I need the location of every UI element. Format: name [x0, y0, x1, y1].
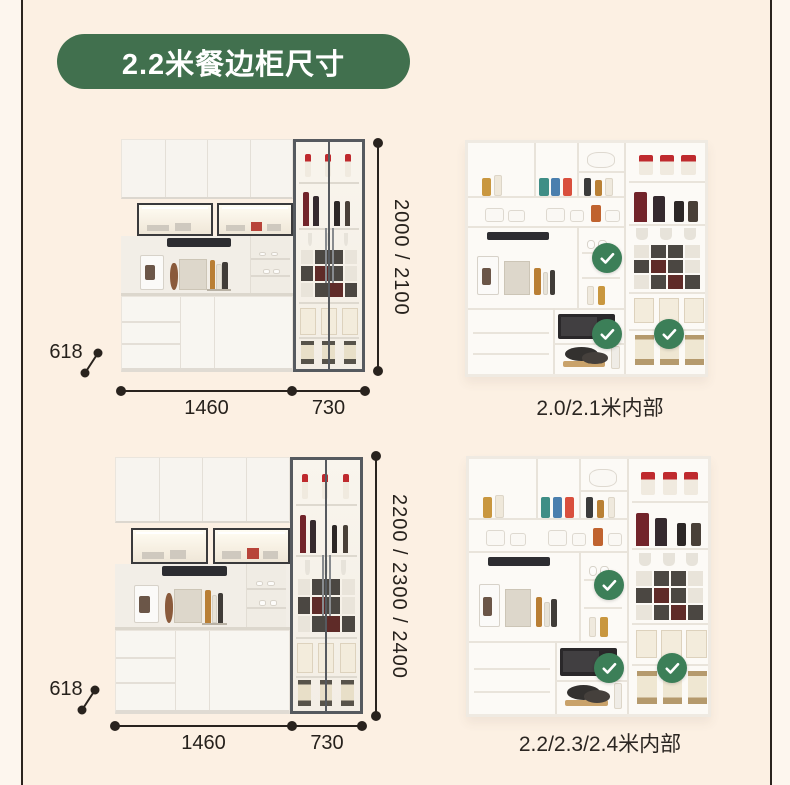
stemware: [344, 233, 349, 247]
liquor-bottle: [345, 154, 351, 177]
cabinet-diagram-2.2m: [115, 457, 363, 714]
bottle: [222, 262, 227, 290]
stemware: [639, 553, 651, 566]
bottle: [586, 497, 593, 517]
dishes: [608, 533, 622, 546]
glass-display-row: [131, 528, 290, 564]
liquor-bottle: [305, 154, 311, 177]
dishes: [548, 530, 567, 545]
bottle: [205, 590, 211, 623]
bottle: [611, 346, 619, 369]
box: [593, 528, 603, 546]
bottle: [210, 260, 216, 290]
wine-bottle: [345, 201, 350, 226]
bottle: [534, 268, 540, 296]
interior-caption: 2.2/2.3/2.4米内部: [455, 728, 745, 758]
wine-rack-grid: [636, 571, 703, 619]
wine-bottle: [634, 192, 647, 222]
wine-bottle: [688, 201, 697, 222]
tea-caddy: [298, 680, 311, 706]
base-cabinets: [121, 296, 293, 372]
cabinet-interior-illustration: [466, 456, 711, 717]
checkmark-icon: [654, 319, 684, 349]
wine-bottle: [655, 518, 667, 546]
pot: [587, 152, 615, 168]
wine-bottle: [674, 201, 683, 222]
dishes: [486, 530, 505, 545]
wine-bottle: [334, 201, 339, 226]
stemware: [663, 553, 675, 566]
wine-cabinet-section: [293, 139, 365, 372]
dishes: [510, 533, 527, 546]
dishes: [572, 533, 586, 546]
liquor-bottle: [639, 155, 653, 176]
pot: [589, 469, 618, 487]
counter-area: [121, 236, 293, 294]
checkmark-icon: [657, 653, 687, 683]
can: [539, 178, 548, 196]
checkmark-icon: [592, 243, 622, 273]
tea-caddy: [341, 680, 354, 706]
glass-display-row: [137, 203, 293, 236]
bottle: [605, 178, 612, 196]
stemware: [308, 233, 313, 247]
box: [591, 205, 600, 221]
light-strip: [488, 557, 550, 566]
gift-box: [297, 643, 313, 673]
bottle: [218, 593, 223, 623]
base-cabinets: [115, 630, 290, 714]
cup: [589, 566, 597, 576]
bottle: [536, 597, 542, 628]
gift-box: [300, 308, 316, 335]
gift-box: [636, 630, 656, 658]
paper-bag: [504, 261, 530, 296]
coffee-machine: [140, 255, 164, 290]
coffee-machine: [134, 585, 158, 623]
tea-caddy: [301, 341, 314, 365]
open-shelf-niche: [246, 564, 286, 627]
width-main-dimension-label: 1460: [115, 732, 292, 755]
liquor-bottle: [343, 474, 349, 499]
light-strip: [162, 566, 227, 576]
wine-bottle: [300, 515, 307, 553]
liquor-bottle: [681, 155, 695, 176]
jar: [589, 617, 596, 637]
page-margin-right: [772, 0, 790, 785]
coffee-machine: [477, 256, 498, 295]
interior-caption: 2.0/2.1米内部: [455, 392, 745, 422]
tea-caddy: [344, 341, 357, 365]
open-shelf-niche: [250, 236, 290, 294]
gift-box: [686, 630, 706, 658]
tray: [202, 623, 226, 625]
gourd-ornament: [165, 593, 173, 623]
gift-box: [342, 308, 358, 335]
stemware: [686, 553, 698, 566]
tea-caddy: [688, 671, 707, 704]
pan: [584, 690, 610, 703]
liquor-bottle: [641, 472, 655, 495]
upper-doors: [115, 457, 290, 523]
product-dimension-page: { "badge": { "label": "2.2米餐边柜尺寸" }, "co…: [0, 0, 790, 785]
liquor-bottle: [660, 155, 674, 176]
bottle: [543, 272, 549, 295]
wine-bottle: [303, 192, 310, 226]
width-side-dimension-label: 730: [292, 732, 362, 755]
bottle: [550, 270, 556, 295]
height-dimension-label: 2000 / 2100: [386, 143, 412, 371]
jar: [495, 495, 503, 518]
depth-dimension-label: 618: [46, 678, 86, 701]
light-strip: [487, 232, 549, 240]
tea-caddy: [685, 335, 704, 365]
gift-box: [634, 298, 654, 323]
gourd-ornament: [170, 263, 178, 290]
width-side-dimension-label: 730: [292, 397, 365, 420]
width-main-dimension-label: 1460: [121, 397, 292, 420]
can: [541, 497, 551, 517]
dishes: [508, 210, 525, 222]
jar: [600, 617, 607, 637]
wine-bottle: [653, 196, 665, 221]
sideboard-illustration: [121, 139, 365, 372]
paper-bag: [174, 589, 202, 623]
jar: [483, 497, 491, 517]
wine-bottle: [677, 523, 687, 546]
bottle: [608, 497, 615, 517]
stemware: [684, 228, 696, 240]
can: [563, 178, 572, 196]
gift-box: [684, 298, 704, 323]
counter-area: [115, 564, 290, 627]
coffee-machine: [479, 584, 501, 627]
stemware: [636, 228, 648, 240]
bottle: [584, 178, 591, 196]
can: [553, 497, 563, 517]
stemware: [341, 560, 346, 575]
jar: [587, 286, 594, 304]
can: [551, 178, 560, 196]
stemware: [660, 228, 672, 240]
wine-rack-grid: [634, 245, 700, 289]
wine-cabinet-section: [290, 457, 363, 714]
wine-bottle: [332, 525, 337, 553]
section-title-badge: 2.2米餐边柜尺寸: [57, 34, 410, 89]
upper-doors: [121, 139, 293, 199]
cabinet-interior-illustration: [465, 140, 708, 377]
gift-box: [340, 643, 356, 673]
height-dimension-label: 2200 / 2300 / 2400: [384, 456, 410, 716]
bottle: [595, 180, 602, 196]
sideboard-illustration: [115, 457, 363, 714]
wine-bottle: [691, 523, 701, 546]
bottle: [216, 264, 221, 289]
page-border-right: [770, 0, 772, 785]
checkmark-icon: [594, 653, 624, 683]
dishes: [570, 210, 584, 222]
liquor-bottle: [663, 472, 677, 495]
jar: [482, 178, 490, 196]
pan: [582, 352, 608, 364]
bottle: [614, 683, 622, 709]
wine-bottle: [313, 196, 319, 226]
tea-caddy: [637, 671, 656, 704]
checkmark-icon: [592, 319, 622, 349]
jar: [598, 286, 605, 304]
liquor-bottle: [302, 474, 308, 499]
dishes: [485, 208, 504, 222]
page-border-left: [21, 0, 23, 785]
bottle: [597, 500, 604, 518]
dishes: [605, 210, 619, 222]
checkmark-icon: [594, 570, 624, 600]
bottle: [551, 599, 557, 627]
depth-dimension-label: 618: [46, 341, 86, 364]
wine-bottle: [343, 525, 348, 553]
jar: [494, 175, 502, 196]
bottle: [212, 595, 217, 623]
page-margin-left: [0, 0, 21, 785]
light-strip: [167, 238, 231, 247]
stemware: [305, 560, 310, 575]
wine-bottle: [636, 513, 649, 546]
can: [565, 497, 575, 517]
cabinet-diagram-2.0m: [121, 139, 365, 372]
dishes: [546, 208, 565, 222]
paper-bag: [505, 589, 531, 627]
interior-photo-2.0m: [465, 140, 702, 371]
section-title: 2.2米餐边柜尺寸: [122, 41, 345, 83]
wine-bottle: [310, 520, 316, 553]
paper-bag: [179, 259, 207, 290]
interior-photo-2.2m: [466, 456, 705, 711]
cup: [587, 240, 595, 249]
liquor-bottle: [684, 472, 698, 495]
tray: [207, 289, 231, 291]
tea-caddy: [635, 335, 654, 365]
bottle: [544, 602, 550, 628]
